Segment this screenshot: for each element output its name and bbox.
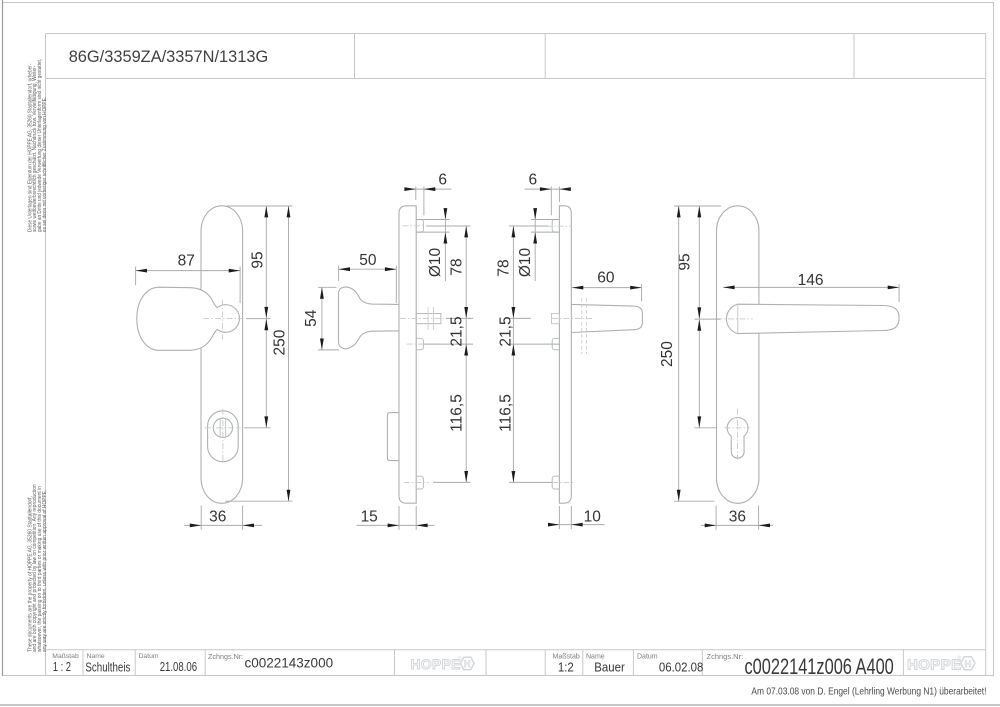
svg-text:Maßstab: Maßstab: [52, 653, 79, 660]
svg-text:6: 6: [438, 172, 447, 189]
svg-text:®: ®: [458, 655, 462, 662]
svg-text:146: 146: [798, 272, 824, 289]
svg-text:HOPPE: HOPPE: [411, 657, 461, 672]
svg-text:H: H: [464, 659, 471, 669]
svg-text:1:2: 1:2: [558, 660, 574, 675]
svg-text:116,5: 116,5: [449, 394, 466, 432]
svg-text:H: H: [964, 659, 971, 670]
svg-text:10: 10: [584, 508, 602, 525]
svg-text:87: 87: [178, 252, 195, 269]
svg-text:Am 07.03.08 von D. Engel (Lehr: Am 07.03.08 von D. Engel (Lehrling Werbu…: [751, 686, 986, 697]
svg-text:Ø10: Ø10: [517, 247, 534, 277]
svg-text:78: 78: [496, 259, 513, 276]
svg-text:36: 36: [209, 509, 226, 526]
svg-text:Name: Name: [87, 653, 105, 660]
svg-text:86G/3359ZA/3357N/1313G: 86G/3359ZA/3357N/1313G: [69, 48, 269, 66]
svg-text:21,5: 21,5: [498, 316, 515, 346]
svg-text:36: 36: [729, 509, 746, 526]
svg-text:78: 78: [449, 258, 466, 275]
svg-text:Datum: Datum: [637, 654, 658, 661]
svg-text:250: 250: [272, 329, 289, 355]
svg-text:54: 54: [303, 309, 320, 327]
svg-text:06.02.08: 06.02.08: [659, 660, 704, 675]
svg-text:c0022141z006 A400: c0022141z006 A400: [745, 655, 894, 680]
svg-text:Datum: Datum: [139, 653, 159, 660]
svg-text:15: 15: [361, 509, 378, 526]
svg-text:Schultheis: Schultheis: [85, 661, 130, 675]
svg-text:c0022143z000: c0022143z000: [245, 656, 334, 671]
svg-text:250: 250: [659, 341, 676, 367]
svg-text:Ø10: Ø10: [427, 247, 444, 277]
svg-text:Bauer: Bauer: [594, 660, 625, 675]
svg-text:HOPPE: HOPPE: [907, 657, 962, 674]
svg-text:21,5: 21,5: [449, 316, 466, 346]
svg-text:Zchngs.Nr:: Zchngs.Nr:: [707, 652, 744, 661]
svg-text:60: 60: [597, 269, 615, 286]
svg-text:®: ®: [958, 655, 962, 662]
svg-text:116,5: 116,5: [498, 394, 515, 432]
svg-text:50: 50: [359, 252, 377, 269]
svg-text:Zchngs.Nr:: Zchngs.Nr:: [208, 652, 243, 661]
svg-text:6: 6: [528, 172, 537, 189]
svg-text:any way are strictly forbidden: any way are strictly forbidden, unless w…: [42, 490, 48, 652]
svg-text:95: 95: [250, 251, 267, 268]
svg-text:es sei denn mit vorheriger sch: es sei denn mit vorheriger schriftlicher…: [42, 97, 48, 232]
svg-text:1 : 2: 1 : 2: [53, 661, 71, 675]
svg-text:21.08.06: 21.08.06: [160, 661, 197, 675]
